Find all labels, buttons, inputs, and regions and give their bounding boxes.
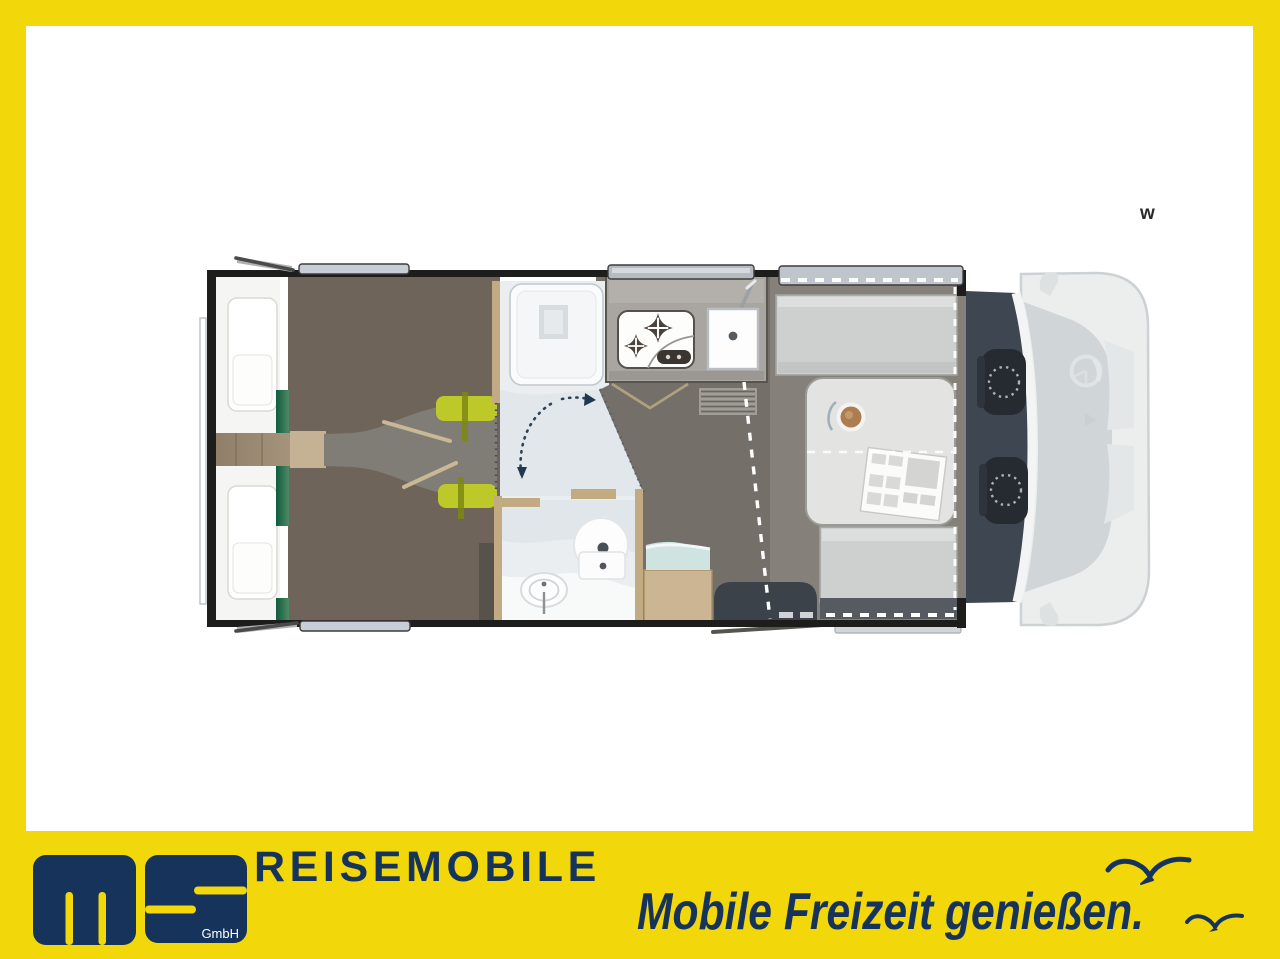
svg-text:GmbH: GmbH: [201, 926, 239, 941]
